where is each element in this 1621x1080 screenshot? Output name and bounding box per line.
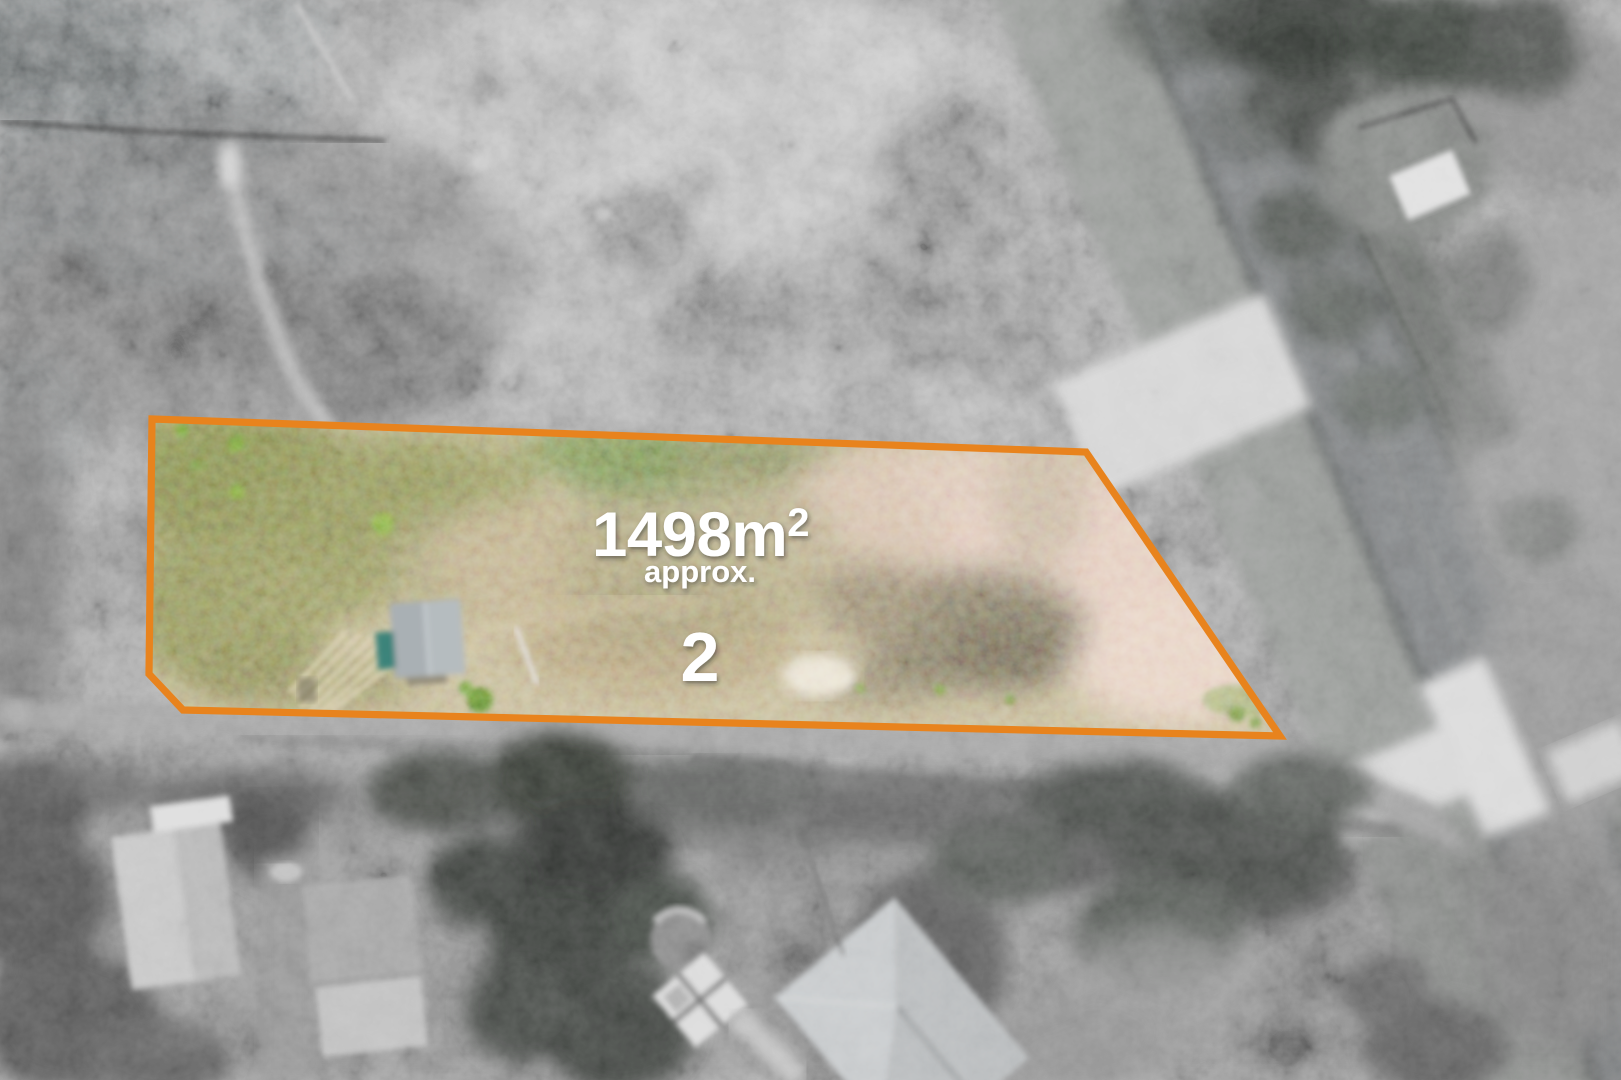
svg-text:2: 2 <box>681 618 720 696</box>
svg-text:approx.: approx. <box>644 554 756 589</box>
